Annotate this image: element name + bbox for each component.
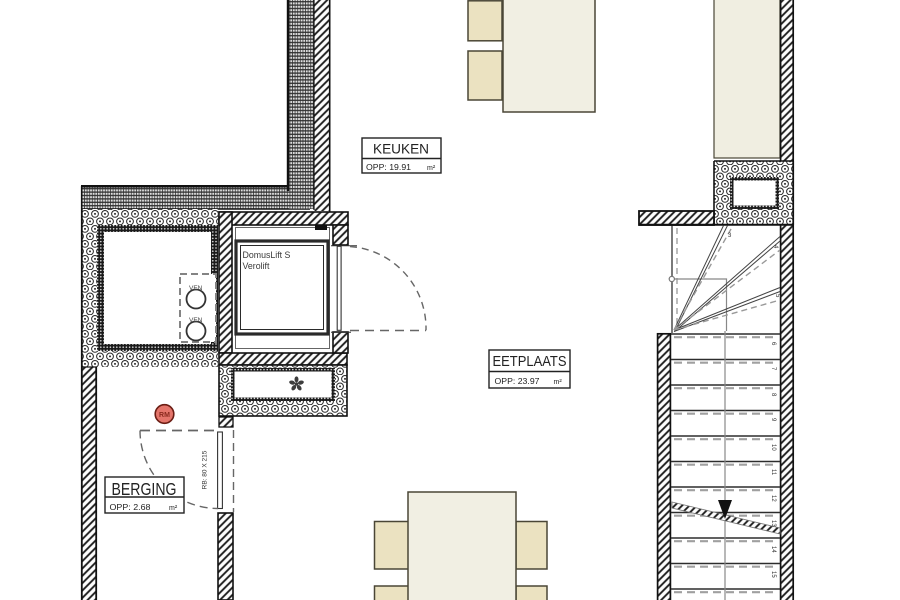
svg-text:EETPLAATS: EETPLAATS [493,354,567,370]
svg-text:m²: m² [427,165,436,172]
svg-text:15: 15 [770,571,776,578]
svg-text:Verolift: Verolift [243,261,270,271]
svg-text:RB: 80 X 215: RB: 80 X 215 [202,450,209,489]
svg-text:OPP: 19.91: OPP: 19.91 [366,163,412,172]
svg-text:m²: m² [554,379,563,386]
svg-text:VEN: VEN [189,317,203,324]
svg-text:12: 12 [770,495,776,502]
svg-text:m²: m² [169,505,178,512]
svg-text:VEN: VEN [189,285,203,292]
svg-text:RM: RM [159,412,170,419]
svg-text:13: 13 [770,520,776,527]
svg-text:10: 10 [770,444,776,451]
svg-text:DomusLift S: DomusLift S [243,250,291,260]
svg-text:KEUKEN: KEUKEN [373,141,429,157]
svg-text:OPP: 2.68: OPP: 2.68 [110,503,152,512]
svg-text:OPP: 23.97: OPP: 23.97 [495,377,541,386]
svg-text:BERGING: BERGING [112,479,177,499]
svg-text:14: 14 [770,546,776,553]
svg-text:11: 11 [770,469,776,476]
